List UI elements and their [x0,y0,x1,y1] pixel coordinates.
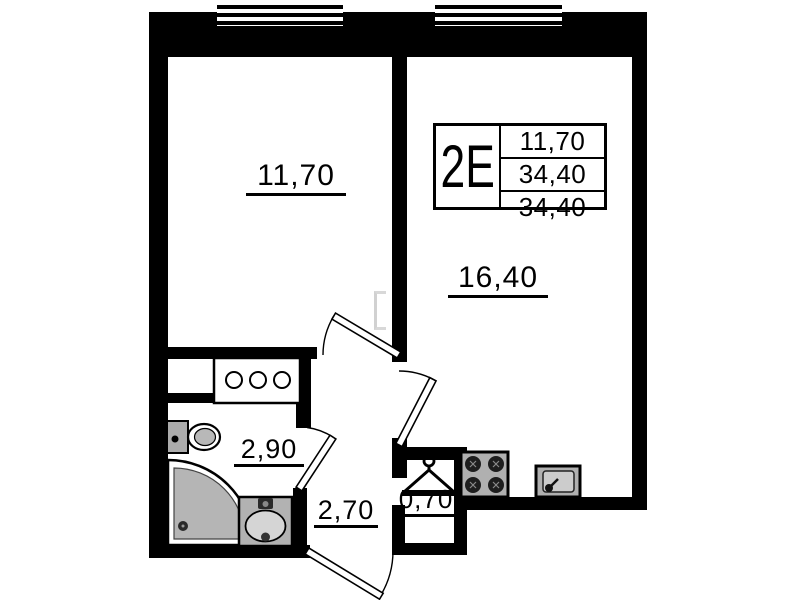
cabinet-icon [214,358,300,403]
unit-area-row: 34,40 [501,190,604,223]
stove-icon [461,452,508,497]
unit-area-row: 34,40 [501,157,604,190]
unit-info-table: 2Е 11,70 34,40 34,40 [433,123,607,210]
kitchen-sink-icon [536,466,580,497]
hallway-area-label: 2,70 [314,496,378,528]
toilet-icon [167,421,220,453]
washbasin-icon [239,497,292,546]
bathroom-area-label: 2,90 [234,435,304,467]
bedroom-door-swing-icon [323,313,401,358]
unit-area-row: 11,70 [501,126,604,157]
entrance-door-swing-icon [305,548,393,599]
unit-type-label: 2Е [440,132,494,201]
unit-areas-column: 11,70 34,40 34,40 [501,126,604,207]
floor-plan: 11,70 16,40 2,90 2,70 0,70 2Е 11,70 34,4… [0,0,799,600]
kitchen-door-swing-icon [396,371,436,447]
bedroom-area-label: 11,70 [246,160,346,196]
kitchen-living-area-label: 16,40 [448,262,548,298]
unit-type-cell: 2Е [436,126,501,207]
closet-area-label: 0,70 [396,486,456,517]
